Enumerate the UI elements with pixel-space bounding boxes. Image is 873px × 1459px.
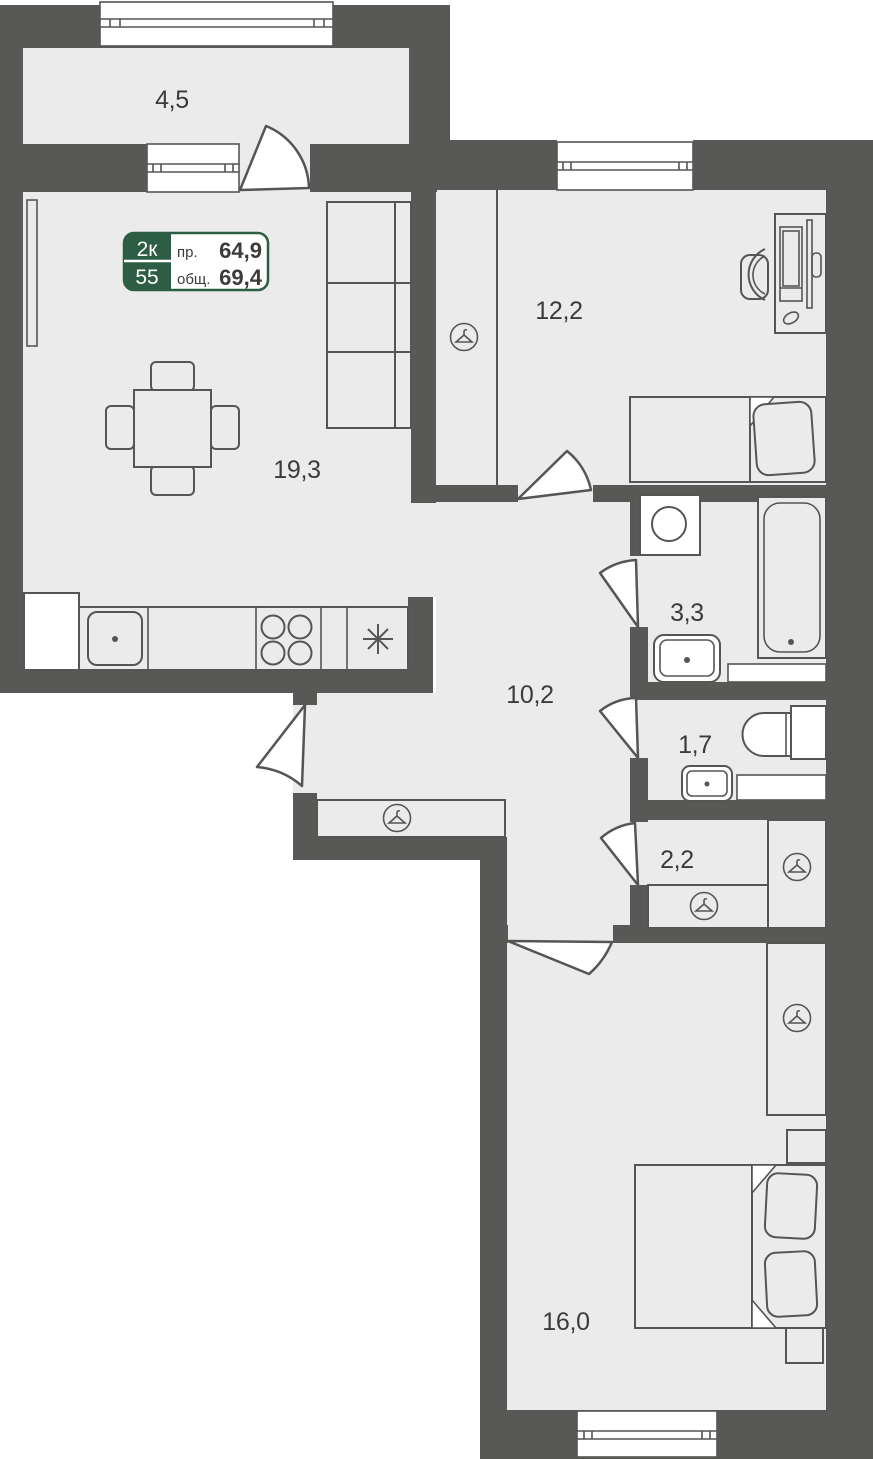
label-wc: 1,7: [678, 731, 712, 759]
table: [134, 390, 211, 467]
label-hallway: 10,2: [506, 681, 553, 709]
fridge: [24, 593, 79, 670]
label-bathroom: 3,3: [670, 599, 704, 627]
wc-shelf: [737, 775, 826, 800]
pillow: [764, 1251, 817, 1318]
hallway-wardrobe: [317, 800, 505, 837]
label-bedroom-bottom: 16,0: [542, 1308, 589, 1336]
badge-total-value: 69,4: [219, 265, 263, 290]
badge-living-value: 64,9: [219, 238, 262, 263]
door-entrance: [257, 705, 305, 786]
double-bed: [635, 1165, 826, 1328]
floor-hallway-c: [505, 860, 630, 925]
chair-left: [106, 406, 134, 449]
badge-living-label: пр.: [177, 244, 198, 261]
chair-top: [151, 362, 194, 391]
living-wardrobe: [327, 202, 411, 428]
toilet: [743, 706, 826, 759]
label-balcony: 4,5: [155, 86, 189, 114]
badge-rooms-count: 2к: [137, 238, 159, 261]
floor-plan-page: 4,5 19,3 12,2 10,2 3,3 1,7 2,2 16,0 2к 5…: [0, 0, 873, 1459]
unit-info-badge: 2к 55 пр. 64,9 общ. 69,4: [124, 233, 268, 290]
bathtub: [758, 497, 826, 658]
window-balcony-top: [100, 2, 333, 46]
washing-machine: [640, 495, 700, 555]
chair-bottom: [151, 466, 194, 495]
desk-chair: [741, 249, 768, 300]
badge-total-label: общ.: [177, 271, 210, 288]
label-bedroom-top: 12,2: [535, 297, 582, 325]
floor-plan-canvas: 4,5 19,3 12,2 10,2 3,3 1,7 2,2 16,0 2к 5…: [0, 0, 873, 1459]
floor-balcony: [23, 48, 409, 148]
window-bedroom-top: [557, 142, 693, 190]
closet-wardrobe-right: [768, 820, 826, 928]
pillow: [764, 1173, 817, 1240]
single-bed: [630, 397, 826, 482]
label-closet: 2,2: [660, 846, 694, 874]
closet-wardrobe-bottom: [648, 885, 768, 928]
bathroom-shelf: [728, 664, 826, 682]
bedroom-bottom-wardrobe: [767, 943, 826, 1115]
window-bedroom-bottom: [577, 1411, 717, 1457]
badge-unit-number: 55: [135, 266, 158, 289]
floor-hallway-passage: [411, 503, 436, 597]
label-living-kitchen: 19,3: [273, 456, 320, 484]
chair-right: [211, 406, 239, 449]
desk: [775, 214, 826, 333]
nightstand-top: [787, 1130, 826, 1163]
pillow: [753, 401, 816, 476]
wc-sink: [682, 766, 732, 801]
window-balcony-living: [147, 144, 239, 192]
bathroom-sink: [654, 635, 720, 682]
nightstand-bottom: [786, 1328, 823, 1363]
